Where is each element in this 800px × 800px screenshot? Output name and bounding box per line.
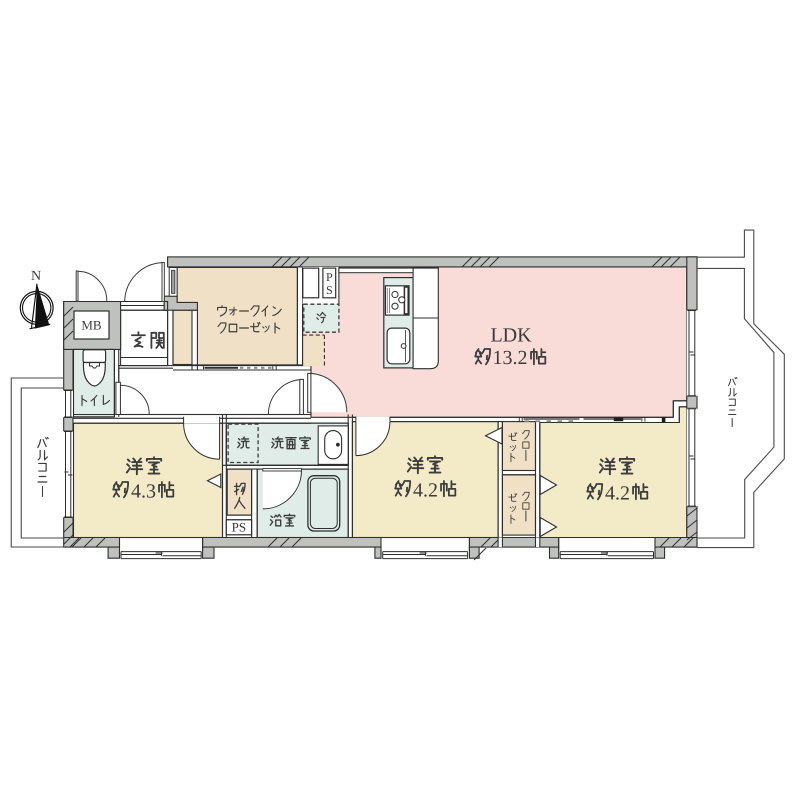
svg-text:S: S — [326, 283, 333, 297]
svg-text:N: N — [31, 269, 41, 284]
svg-text:4.3: 4.3 — [131, 481, 156, 503]
svg-text:LDK: LDK — [490, 325, 532, 347]
svg-text:4.2: 4.2 — [605, 483, 630, 505]
svg-text:13.2: 13.2 — [493, 347, 528, 369]
svg-text:MB: MB — [81, 318, 102, 333]
svg-text:P: P — [326, 270, 333, 284]
svg-text:4.2: 4.2 — [413, 480, 438, 502]
svg-text:PS: PS — [232, 520, 246, 535]
